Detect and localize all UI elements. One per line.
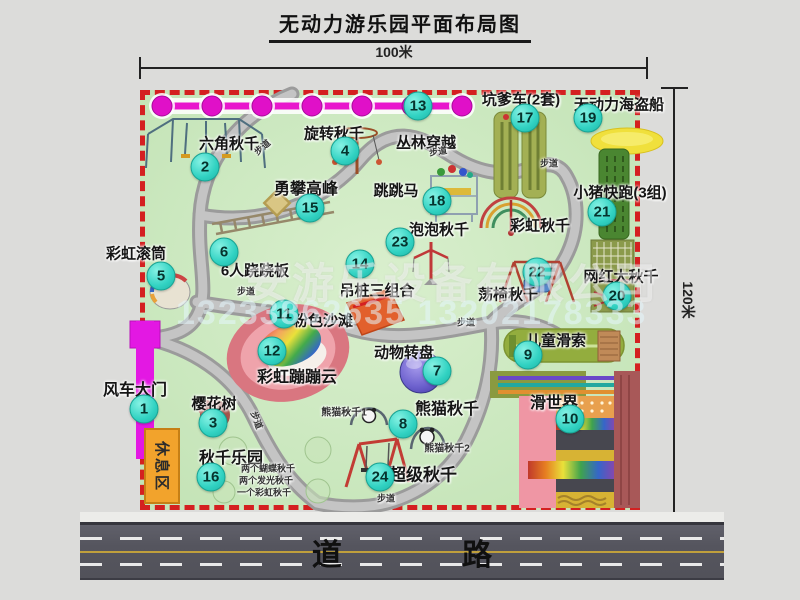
item-label-24: 超级秋千 xyxy=(389,461,457,486)
rest-area: 休息区 xyxy=(144,428,180,504)
item-label-18: 跳跳马 xyxy=(373,180,418,201)
rest-area-label: 休息区 xyxy=(152,440,173,491)
item-badge-15: 15 xyxy=(296,194,325,223)
path-sign: 步道 xyxy=(540,157,558,170)
item-badge-21: 21 xyxy=(588,198,617,227)
item-badge-8: 8 xyxy=(389,410,418,439)
label-panda-swing-2: 熊猫秋千2 xyxy=(424,440,470,455)
item-label-7: 动物转盘 xyxy=(374,342,434,363)
item-badge-13: 13 xyxy=(404,92,433,121)
note-rainbow-swing: 一个彩虹秋千 xyxy=(237,486,291,499)
item-badge-2: 2 xyxy=(191,153,220,182)
item-badge-7: 7 xyxy=(423,357,452,386)
item-label-12: 彩虹蹦蹦云 xyxy=(257,363,337,387)
plan-drawing: 无动力游乐园平面布局图 xyxy=(0,0,800,600)
dimension-right-label: 120米 xyxy=(678,281,698,318)
label-panda-swing-1: 熊猫秋千1 xyxy=(321,404,367,419)
item-badge-1: 1 xyxy=(130,395,159,424)
item-label-5: 彩虹滚筒 xyxy=(106,243,166,264)
label-rainbow-swing: 彩虹秋千 xyxy=(510,215,570,236)
watermark-phone: 13233862635 13202178333 xyxy=(176,294,647,333)
item-badge-9: 9 xyxy=(514,341,543,370)
item-badge-10: 10 xyxy=(556,405,585,434)
item-badge-19: 19 xyxy=(574,104,603,133)
road-shoulder xyxy=(80,512,724,522)
item-badge-4: 4 xyxy=(331,137,360,166)
item-badge-12: 12 xyxy=(258,337,287,366)
item-badge-6: 6 xyxy=(210,238,239,267)
dimension-top-label: 100米 xyxy=(375,42,412,62)
item-badge-18: 18 xyxy=(423,187,452,216)
path-sign: 步道 xyxy=(428,143,448,158)
item-label-21: 小猪快跑(3组) xyxy=(573,182,666,203)
path-sign: 步道 xyxy=(377,492,395,505)
item-label-8: 熊猫秋千 xyxy=(415,395,479,419)
item-badge-24: 24 xyxy=(366,463,395,492)
road: 道 路 xyxy=(80,522,724,580)
road-label: 道 路 xyxy=(256,530,548,574)
item-badge-3: 3 xyxy=(199,409,228,438)
item-label-23: 泡泡秋千 xyxy=(409,219,469,240)
item-badge-16: 16 xyxy=(197,463,226,492)
item-badge-5: 5 xyxy=(147,262,176,291)
item-label-2: 六角秋千 xyxy=(199,133,259,154)
item-badge-17: 17 xyxy=(511,104,540,133)
page-title: 无动力游乐园平面布局图 xyxy=(269,8,531,43)
